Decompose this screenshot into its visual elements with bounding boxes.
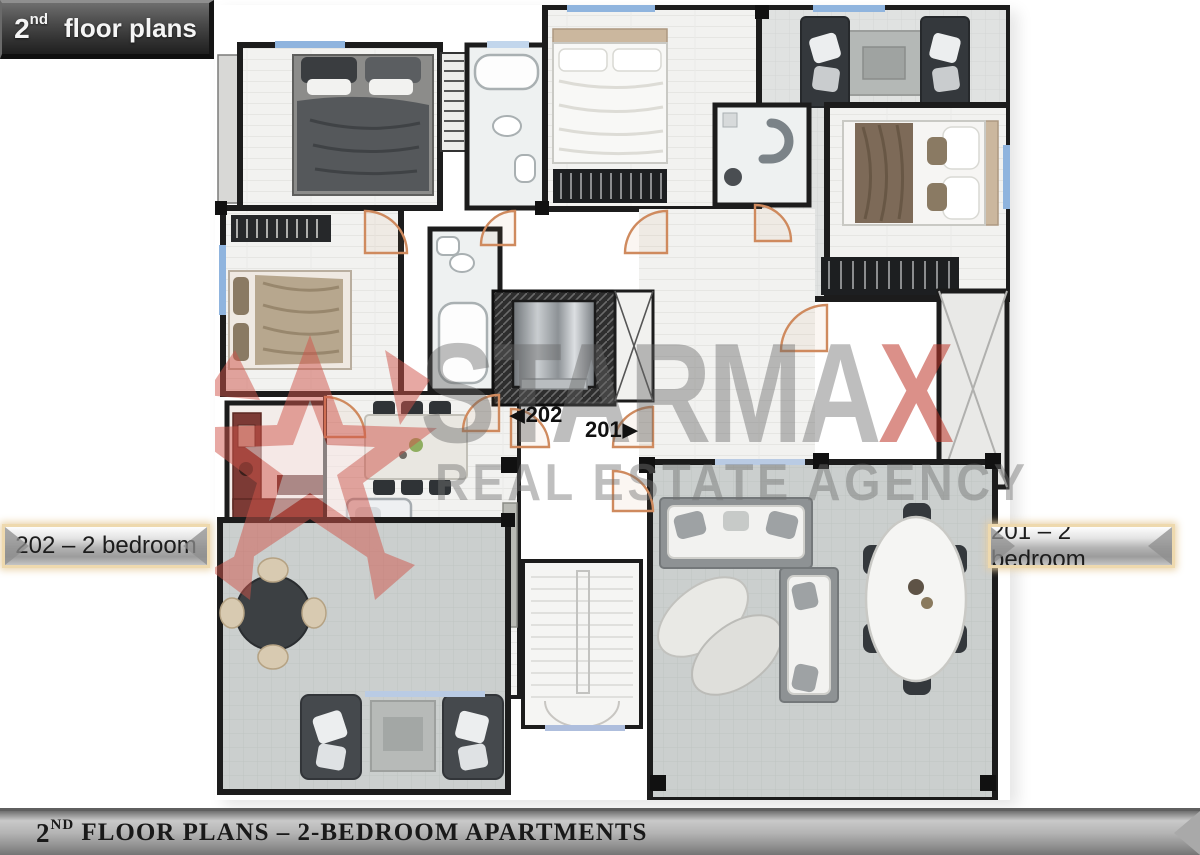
floor-plan-drawing <box>215 5 1010 800</box>
unit-202-plaque: 202 – 2 bedroom <box>2 524 210 568</box>
door-tag-202: ◀ 202 <box>510 402 562 428</box>
title-badge: 2ndfloor plans <box>0 0 214 59</box>
bathroom-2 <box>430 229 500 391</box>
closet-rail <box>231 215 331 242</box>
footer-title-bar: 2ND FLOOR PLANS – 2-BEDROOM APARTMENTS <box>0 808 1200 855</box>
outdoor-sofa <box>660 498 812 568</box>
bed-dark <box>293 55 433 195</box>
sofa-dark <box>801 17 849 107</box>
bathroom-1 <box>467 45 546 208</box>
unit-201-plaque-label: 201 – 2 bedroom <box>991 524 1172 568</box>
terrace-202 <box>220 520 508 792</box>
bathroom-3 <box>715 105 809 205</box>
slide: STARMAX REAL ESTATE AGENCY ◀ 202 201 ▶ 2… <box>0 0 1200 855</box>
wardrobe-shelves <box>441 53 467 151</box>
title-badge-number: 2 <box>14 13 30 45</box>
unit-202-plaque-label: 202 – 2 bedroom <box>15 532 196 560</box>
bed-brown <box>229 271 351 369</box>
title-badge-ordinal: nd <box>30 11 48 28</box>
door-tag-201-label: 201 <box>585 417 622 443</box>
unit-201-plaque: 201 – 2 bedroom <box>988 524 1175 568</box>
outdoor-sofa-vertical <box>780 568 838 702</box>
bed-white <box>553 29 667 163</box>
footer-number: 2 <box>36 818 51 849</box>
footer-text: FLOOR PLANS – 2-BEDROOM APARTMENTS <box>74 819 647 847</box>
arrow-left-icon: ◀ <box>510 404 525 427</box>
stairwell <box>523 561 641 731</box>
terrace-armchair <box>301 695 361 779</box>
floor-plan-image: STARMAX REAL ESTATE AGENCY ◀ 202 201 ▶ <box>215 5 1010 800</box>
terrace-armchair <box>443 695 503 779</box>
terrace-201 <box>644 462 995 800</box>
stairs-upper <box>615 291 653 401</box>
wardrobe-clothes <box>553 169 667 203</box>
title-badge-text: floor plans <box>64 13 197 44</box>
footer-ordinal: ND <box>51 817 75 834</box>
door-tag-202-label: 202 <box>526 402 563 428</box>
elevator-car <box>513 301 595 387</box>
door-tag-201: 201 ▶ <box>585 417 637 443</box>
sofa-dark <box>921 17 969 107</box>
arrow-right-icon: ▶ <box>623 419 638 442</box>
